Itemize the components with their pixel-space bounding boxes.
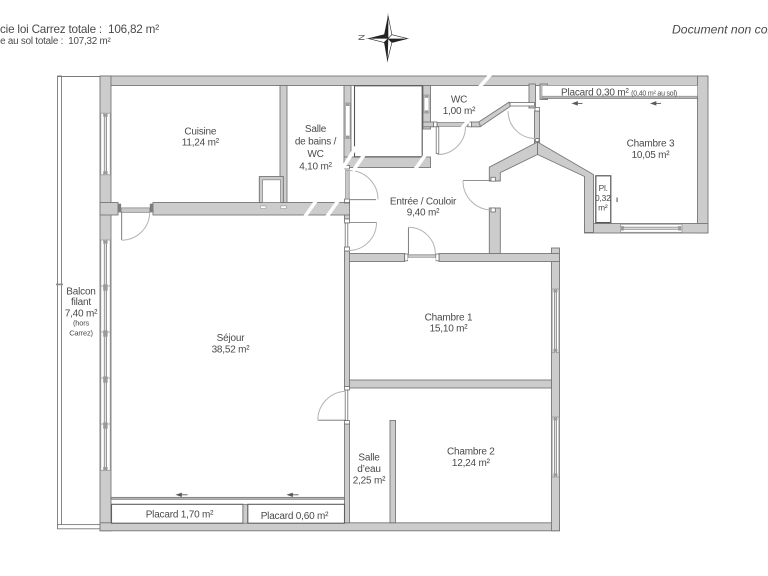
svg-text:Séjour: Séjour: [217, 333, 246, 344]
svg-text:15,10 m²: 15,10 m²: [430, 324, 469, 335]
svg-text:m²: m²: [598, 203, 608, 213]
svg-text:Balcon: Balcon: [66, 287, 95, 298]
svg-text:d’eau: d’eau: [357, 464, 380, 475]
svg-text:4,10 m²: 4,10 m²: [299, 162, 332, 173]
svg-text:N: N: [357, 34, 367, 40]
svg-text:11,24 m²: 11,24 m²: [182, 138, 220, 149]
svg-text:0,32: 0,32: [595, 193, 611, 203]
svg-text:Document non contractuel: Document non contractuel: [672, 23, 768, 37]
svg-text:WC: WC: [307, 149, 323, 160]
svg-text:Salle: Salle: [305, 124, 327, 135]
svg-text:Surface au sol totale : 107,3: Surface au sol totale : 107,32 m²: [0, 36, 111, 47]
svg-text:9,40 m²: 9,40 m²: [407, 208, 440, 219]
svg-text:Pl.: Pl.: [599, 183, 608, 193]
svg-text:10,05 m²: 10,05 m²: [632, 150, 671, 161]
svg-text:1,00 m²: 1,00 m²: [443, 106, 476, 117]
svg-text:WC: WC: [451, 95, 467, 106]
svg-text:Placard 1,70 m²: Placard 1,70 m²: [146, 510, 214, 521]
svg-text:2,25 m²: 2,25 m²: [353, 476, 386, 487]
svg-text:12,24 m²: 12,24 m²: [452, 458, 491, 469]
svg-text:filant: filant: [71, 297, 91, 308]
svg-text:(hors: (hors: [73, 319, 90, 328]
svg-text:Chambre 1: Chambre 1: [425, 313, 473, 324]
svg-text:Carrez): Carrez): [69, 329, 93, 338]
svg-text:38,52 m²: 38,52 m²: [212, 345, 251, 356]
svg-text:Placard 0,60 m²: Placard 0,60 m²: [261, 511, 329, 522]
svg-text:Salle: Salle: [358, 453, 380, 464]
svg-text:Entrée / Couloir: Entrée / Couloir: [390, 197, 457, 208]
svg-text:Cuisine: Cuisine: [184, 127, 217, 138]
svg-text:Superficie loi Carrez totale :: Superficie loi Carrez totale : 106,82 m²: [0, 23, 159, 36]
svg-text:de bains /: de bains /: [295, 137, 337, 148]
svg-text:Chambre 3: Chambre 3: [627, 139, 675, 150]
svg-text:Chambre 2: Chambre 2: [447, 447, 495, 458]
